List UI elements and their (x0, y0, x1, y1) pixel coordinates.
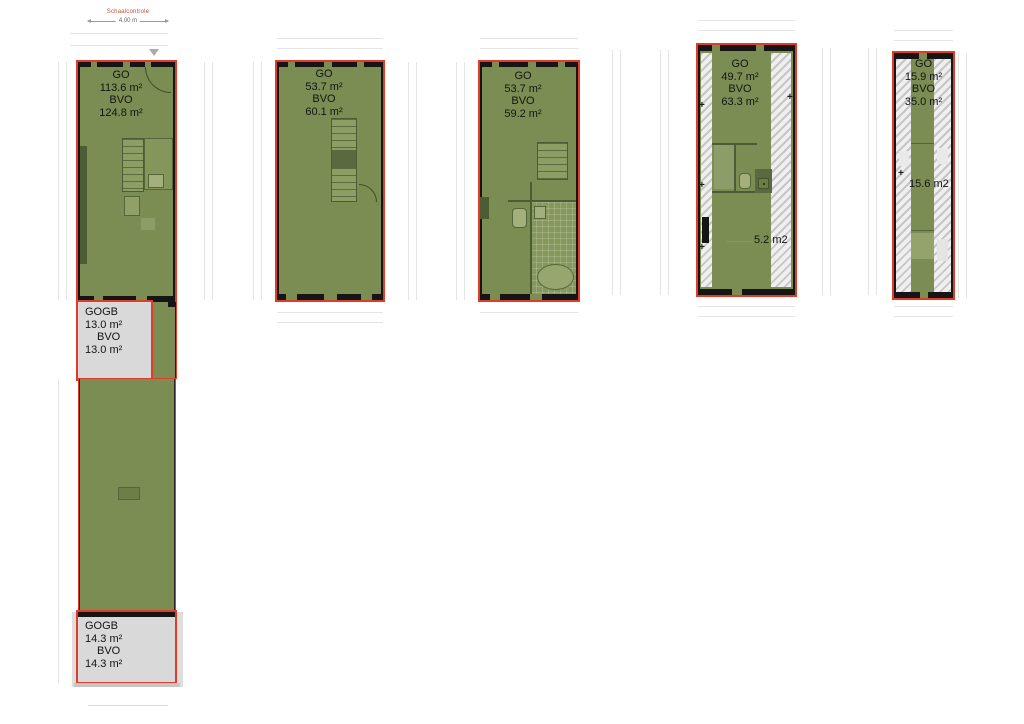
go-area-value: 49.7 m² (706, 71, 774, 84)
go-label: GO (706, 58, 774, 71)
scale-bar-left-arrow-icon (87, 19, 91, 23)
unit5-floorplan: + 15.6 m2 GO 15.9 m² BVO 35.0 m² (894, 53, 953, 298)
dimension-line (894, 30, 953, 31)
wall-segment (911, 230, 934, 231)
stove (758, 178, 769, 189)
window-gap (286, 294, 297, 300)
dimension-line (456, 62, 457, 300)
window-gap (324, 62, 332, 67)
wall-segment (530, 182, 532, 294)
go-area-value: 15.9 m² (886, 71, 961, 84)
dimension-line (698, 316, 795, 317)
sink (534, 206, 546, 219)
gogb-area-value: 13.0 m² (85, 319, 122, 332)
dormer (899, 151, 909, 166)
dimension-line (612, 50, 613, 295)
dimension-line (253, 62, 254, 300)
window-gap (357, 62, 364, 67)
go-label: GO (285, 68, 363, 81)
window-gap (492, 62, 499, 67)
wall-segment (480, 62, 482, 300)
go-label: GO (82, 69, 160, 82)
bvo-label: BVO (97, 331, 122, 344)
gogb-label: GOGB (85, 306, 122, 319)
dimension-line (894, 316, 953, 317)
unit4-annotation: 5.2 m2 (754, 234, 788, 246)
dimension-line (277, 322, 383, 323)
scale-bar-right-arrow-icon (165, 19, 169, 23)
scale-control-value: 4,00 m (116, 18, 140, 25)
dimension-line (88, 705, 168, 706)
unit1-garden (79, 379, 175, 612)
bvo-label: BVO (886, 83, 961, 96)
bvo-area-value: 63.3 m² (706, 96, 774, 109)
dimension-line (58, 62, 59, 300)
dimension-line (876, 48, 877, 295)
bvo-label: BVO (82, 94, 160, 107)
bvo-area-value: 13.0 m² (85, 344, 122, 357)
stairs (122, 138, 144, 192)
door-arc (359, 184, 377, 202)
scale-control-label: Schaalcontrole (96, 9, 160, 15)
bvo-label: BVO (706, 83, 774, 96)
dimension-line (58, 379, 59, 683)
unit3-floorplan: GO 53.7 m² BVO 59.2 m² (480, 62, 578, 300)
unit1-area-label: GO 113.6 m² BVO 124.8 m² (82, 69, 160, 119)
chimney (702, 217, 709, 243)
stair-landing (332, 150, 356, 168)
dimension-line (822, 48, 823, 295)
plus-marker: + (699, 101, 705, 110)
dormer (937, 148, 948, 164)
dormer (937, 239, 948, 261)
footing-bar (74, 683, 180, 687)
unit4-floorplan: + + + + 5.2 m2 GO 49.7 m² BVO 63.3 m² (698, 45, 795, 295)
window-gap (756, 45, 764, 51)
go-area-value: 113.6 m² (82, 82, 160, 95)
window-gap (732, 289, 742, 295)
dimension-line (70, 45, 168, 46)
window-gap (123, 62, 130, 67)
wall-segment (78, 612, 175, 617)
gogb-area-label: GOGB 14.3 m² BVO 14.3 m² (85, 620, 122, 670)
window-gap (712, 45, 720, 51)
window-gap (91, 62, 97, 67)
go-area-value: 53.7 m² (484, 83, 562, 96)
wall-segment (168, 302, 176, 307)
dimension-line (261, 62, 262, 300)
neighbor-shading (177, 612, 183, 687)
wall-segment (734, 143, 736, 193)
dimension-line (480, 48, 578, 49)
window-gap (530, 294, 542, 300)
unit1-gogb-bottom: GOGB 14.3 m² BVO 14.3 m² (78, 612, 175, 682)
stairs (537, 142, 568, 180)
wall-recess (480, 197, 489, 219)
room-area (714, 145, 734, 189)
dimension-line (277, 48, 383, 49)
bvo-area-value: 14.3 m² (85, 658, 122, 671)
plus-marker: + (898, 169, 904, 178)
dimension-line (668, 50, 669, 295)
bvo-label: BVO (97, 645, 122, 658)
garden-shed (118, 487, 140, 500)
dimension-line (698, 20, 795, 21)
dimension-line (894, 306, 953, 307)
go-label: GO (886, 58, 961, 71)
dimension-line (698, 30, 795, 31)
unit1-gogb-top: GOGB 13.0 m² BVO 13.0 m² (78, 302, 151, 379)
bvo-area-value: 60.1 m² (285, 106, 363, 119)
bathtub (537, 264, 574, 290)
dimension-line (408, 62, 409, 300)
furniture (141, 218, 155, 230)
toilet (512, 208, 527, 228)
unit2-floorplan: GO 53.7 m² BVO 60.1 m² (277, 62, 383, 300)
bvo-area-value: 59.2 m² (484, 108, 562, 121)
unit3-area-label: GO 53.7 m² BVO 59.2 m² (484, 70, 562, 120)
window-gap (288, 62, 295, 67)
floorplan-sheet: Schaalcontrole 4,00 m (0, 0, 1024, 724)
unit1-side-passage (153, 302, 176, 379)
plus-marker: + (699, 243, 705, 252)
window-gap (361, 294, 372, 300)
dimension-line (830, 48, 831, 295)
bvo-area-value: 124.8 m² (82, 107, 160, 120)
dimension-line (212, 62, 213, 300)
dimension-line (70, 33, 168, 34)
wall-segment (698, 45, 700, 295)
sink (148, 174, 164, 188)
stove-burner (763, 183, 765, 185)
dimension-line (464, 62, 465, 300)
north-triangle-icon (149, 49, 159, 56)
dimension-line (277, 312, 383, 313)
dimension-line (204, 62, 205, 300)
unit2-area-label: GO 53.7 m² BVO 60.1 m² (285, 68, 363, 118)
bvo-label: BVO (484, 95, 562, 108)
wall-segment (381, 62, 383, 300)
window-gap (920, 292, 928, 298)
wall-segment (508, 200, 576, 202)
dimension-line (966, 53, 967, 298)
annotation-leader-line (726, 241, 753, 242)
dimension-line (894, 40, 953, 41)
bvo-label: BVO (285, 93, 363, 106)
unit4-area-label: GO 49.7 m² BVO 63.3 m² (706, 58, 774, 108)
bvo-area-value: 35.0 m² (886, 96, 961, 109)
unit5-area-label: GO 15.9 m² BVO 35.0 m² (886, 58, 961, 108)
wall-segment (698, 289, 795, 295)
plus-marker: + (787, 93, 793, 102)
window-gap (558, 62, 565, 67)
wall-segment (793, 45, 795, 295)
gogb-area-value: 14.3 m² (85, 633, 122, 646)
plus-marker: + (699, 181, 705, 190)
dimension-line (66, 62, 67, 300)
window-gap (528, 62, 536, 67)
dimension-line (698, 306, 795, 307)
unit1-floorplan: GO 113.6 m² BVO 124.8 m² (78, 62, 175, 302)
toilet (124, 196, 140, 216)
wall-segment (576, 62, 578, 300)
go-area-value: 53.7 m² (285, 81, 363, 94)
window-gap (490, 294, 500, 300)
dimension-line (480, 38, 578, 39)
gogb-area-label: GOGB 13.0 m² BVO 13.0 m² (85, 306, 122, 356)
dimension-line (620, 50, 621, 295)
limited-headroom-hatch (771, 53, 791, 287)
room-area (911, 233, 934, 259)
scale-control-bar: 4,00 m (88, 21, 168, 22)
kitchen-counter (80, 146, 87, 264)
dimension-line (868, 48, 869, 295)
go-label: GO (484, 70, 562, 83)
wall-segment (277, 62, 279, 300)
dimension-line (277, 38, 383, 39)
dimension-line (416, 62, 417, 300)
wall-segment (911, 143, 934, 144)
wall-segment (173, 62, 175, 302)
window-gap (324, 294, 337, 300)
dimension-line (480, 312, 578, 313)
toilet (739, 173, 751, 189)
dimension-line (660, 50, 661, 295)
gogb-label: GOGB (85, 620, 122, 633)
unit5-annotation: 15.6 m2 (909, 178, 949, 190)
